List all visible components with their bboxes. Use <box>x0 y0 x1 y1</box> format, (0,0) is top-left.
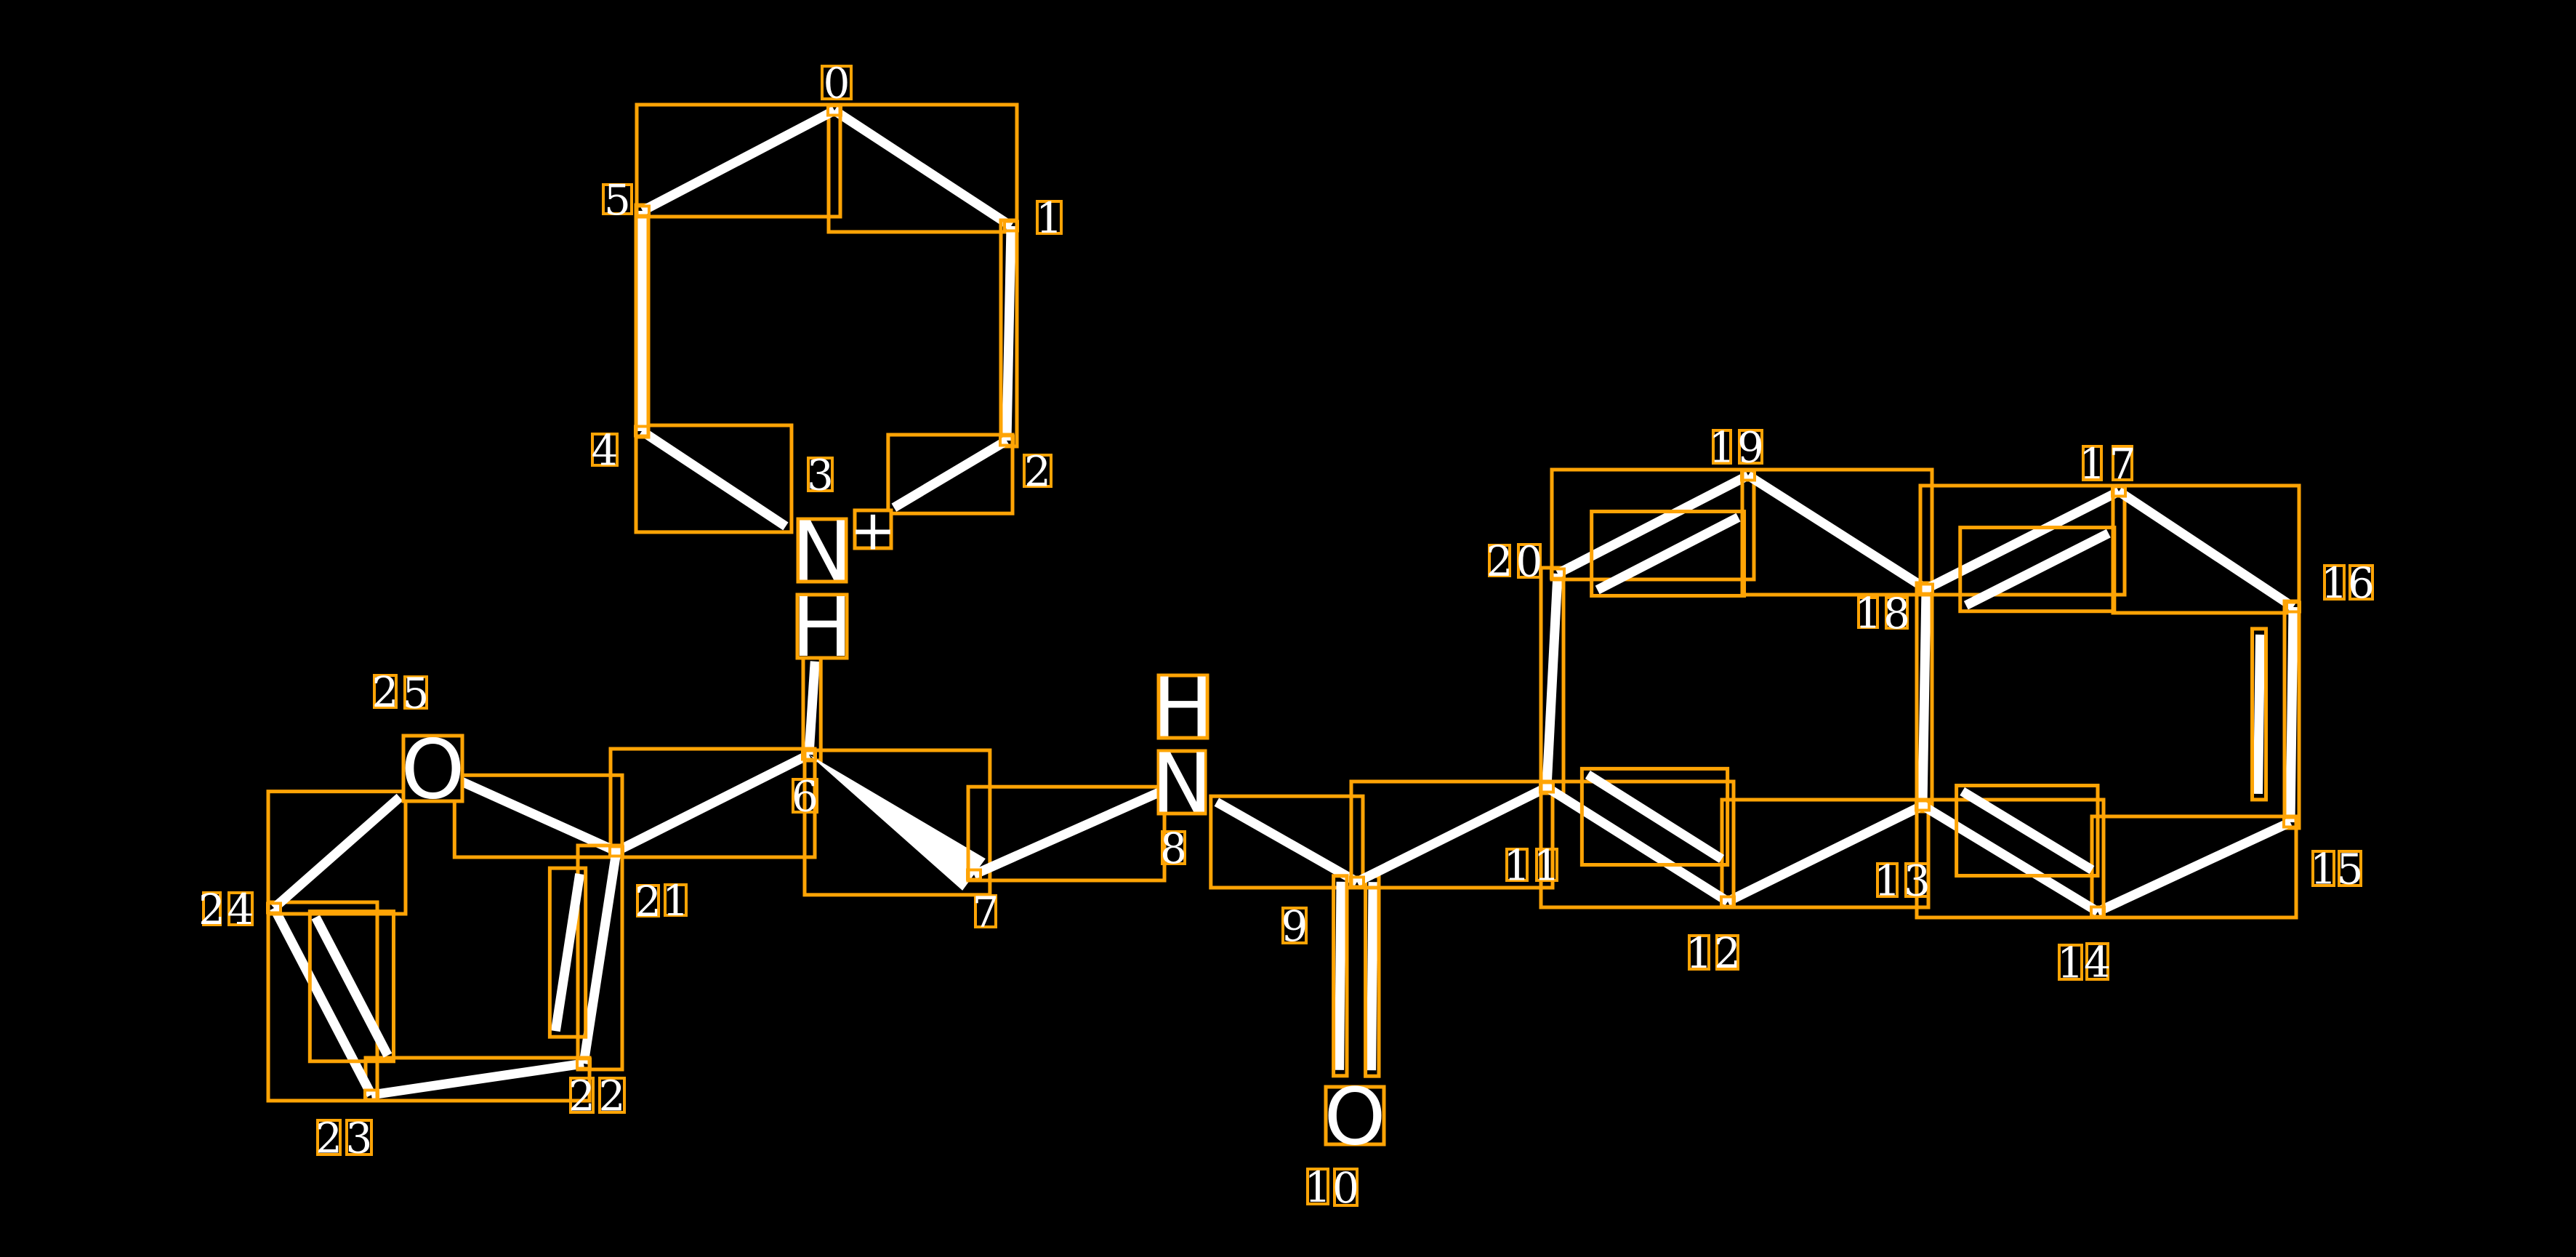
bond-9-10-line2 <box>1372 882 1373 1070</box>
atom-index-19-digit-0: 1 <box>1709 422 1736 472</box>
bond-3-4 <box>642 431 786 526</box>
atom-index-0-digit-0: 0 <box>824 58 850 108</box>
atom-index-21-digit-0: 2 <box>635 877 661 926</box>
bond-5-0 <box>643 111 834 211</box>
atom-index-11-digit-0: 1 <box>1504 840 1531 890</box>
bond-0-1 <box>834 111 1011 226</box>
oxygen-symbol-atom10: O <box>1324 1072 1385 1162</box>
atom-index-10-digit-0: 1 <box>1305 1162 1332 1212</box>
atom-index-17-digit-0: 1 <box>2079 439 2106 489</box>
atom-index-9-digit-0: 9 <box>1281 901 1308 951</box>
atom-index-20-digit-1: 0 <box>1516 537 1543 586</box>
atom-index-12-digit-1: 2 <box>1714 928 1741 978</box>
atom-index-25-digit-1: 5 <box>403 668 430 718</box>
atom-index-22-digit-0: 2 <box>568 1071 595 1120</box>
bond-1-2 <box>1007 226 1011 441</box>
bond-4-5 <box>642 211 643 431</box>
atom-index-25-digit-0: 2 <box>372 667 399 717</box>
bond-15-14 <box>2098 822 2290 912</box>
atom-index-22-digit-1: 2 <box>599 1071 626 1120</box>
bond-11-20 <box>1547 574 1558 787</box>
oxygen-symbol-atom25: O <box>401 723 464 817</box>
bond-17-16 <box>2119 491 2293 607</box>
atom-index-18-digit-0: 1 <box>1855 588 1882 638</box>
plus-charge-atom3: + <box>850 497 896 562</box>
bond-24-25 <box>274 798 400 908</box>
atom-index-12-digit-0: 1 <box>1686 928 1712 978</box>
molecule-canvas: N+HHNOO012345678910111213141516171819202… <box>0 0 2576 1257</box>
atom-index-16-digit-0: 1 <box>2321 558 2348 608</box>
hydrogen-symbol-atom3: H <box>792 581 853 675</box>
bond-3-6 <box>809 662 815 755</box>
bond-18-13 <box>1923 589 1926 806</box>
atom-index-6-digit-0: 6 <box>792 771 818 821</box>
bond-16-15-main <box>2290 607 2293 822</box>
atom-index-13-digit-0: 1 <box>1874 856 1901 905</box>
atom-index-4-digit-0: 4 <box>592 425 619 475</box>
atom-index-15-digit-1: 5 <box>2337 844 2364 893</box>
atom-index-24-digit-0: 2 <box>198 885 225 934</box>
atom-index-21-digit-1: 1 <box>662 876 689 925</box>
bond-21-22-main <box>584 851 616 1064</box>
bond-8-9 <box>1217 802 1357 882</box>
atom-index-15-digit-0: 1 <box>2310 844 2337 893</box>
atom-index-5-digit-0: 5 <box>604 175 631 225</box>
bond-16-15-inner <box>2258 635 2261 794</box>
bond-6-7-wedge <box>809 755 986 891</box>
atom-index-8-digit-0: 8 <box>1160 824 1187 873</box>
atom-index-14-digit-0: 1 <box>2057 938 2084 987</box>
bond-19-18 <box>1748 475 1926 589</box>
atom-index-18-digit-1: 8 <box>1883 589 1910 638</box>
atom-index-16-digit-1: 6 <box>2348 558 2375 608</box>
atom-index-10-digit-1: 0 <box>1332 1163 1359 1213</box>
bond-11-12-inner <box>1587 774 1721 859</box>
bond-9-10-line1 <box>1340 882 1341 1070</box>
atom-index-24-digit-1: 4 <box>228 885 254 934</box>
molecule-diagram: N+HHNOO012345678910111213141516171819202… <box>0 0 2576 1257</box>
bond-13-14-inner <box>1963 791 2092 870</box>
atom-index-3-digit-0: 3 <box>807 450 834 499</box>
atom-index-7-digit-0: 7 <box>973 887 999 936</box>
atom-index-14-digit-1: 4 <box>2084 937 2111 987</box>
atom-index-2-digit-0: 2 <box>1024 446 1051 496</box>
atom-index-19-digit-1: 9 <box>1737 422 1764 472</box>
atom-index-1-digit-0: 1 <box>1036 193 1063 243</box>
atom-index-20-digit-0: 2 <box>1486 537 1513 586</box>
bond-6-21 <box>616 755 809 851</box>
atom-index-11-digit-1: 1 <box>1534 840 1561 890</box>
atom-index-13-digit-1: 3 <box>1904 856 1931 905</box>
bond-22-23 <box>371 1064 584 1095</box>
bond-7-8 <box>974 792 1159 875</box>
atom-index-23-digit-1: 3 <box>346 1113 373 1162</box>
bond-25-21 <box>460 781 616 851</box>
bond-2-3 <box>894 441 1007 507</box>
atom-index-23-digit-0: 2 <box>315 1113 342 1162</box>
nitrogen-symbol-atom8: N <box>1151 736 1212 831</box>
atom-index-17-digit-1: 7 <box>2109 439 2136 489</box>
